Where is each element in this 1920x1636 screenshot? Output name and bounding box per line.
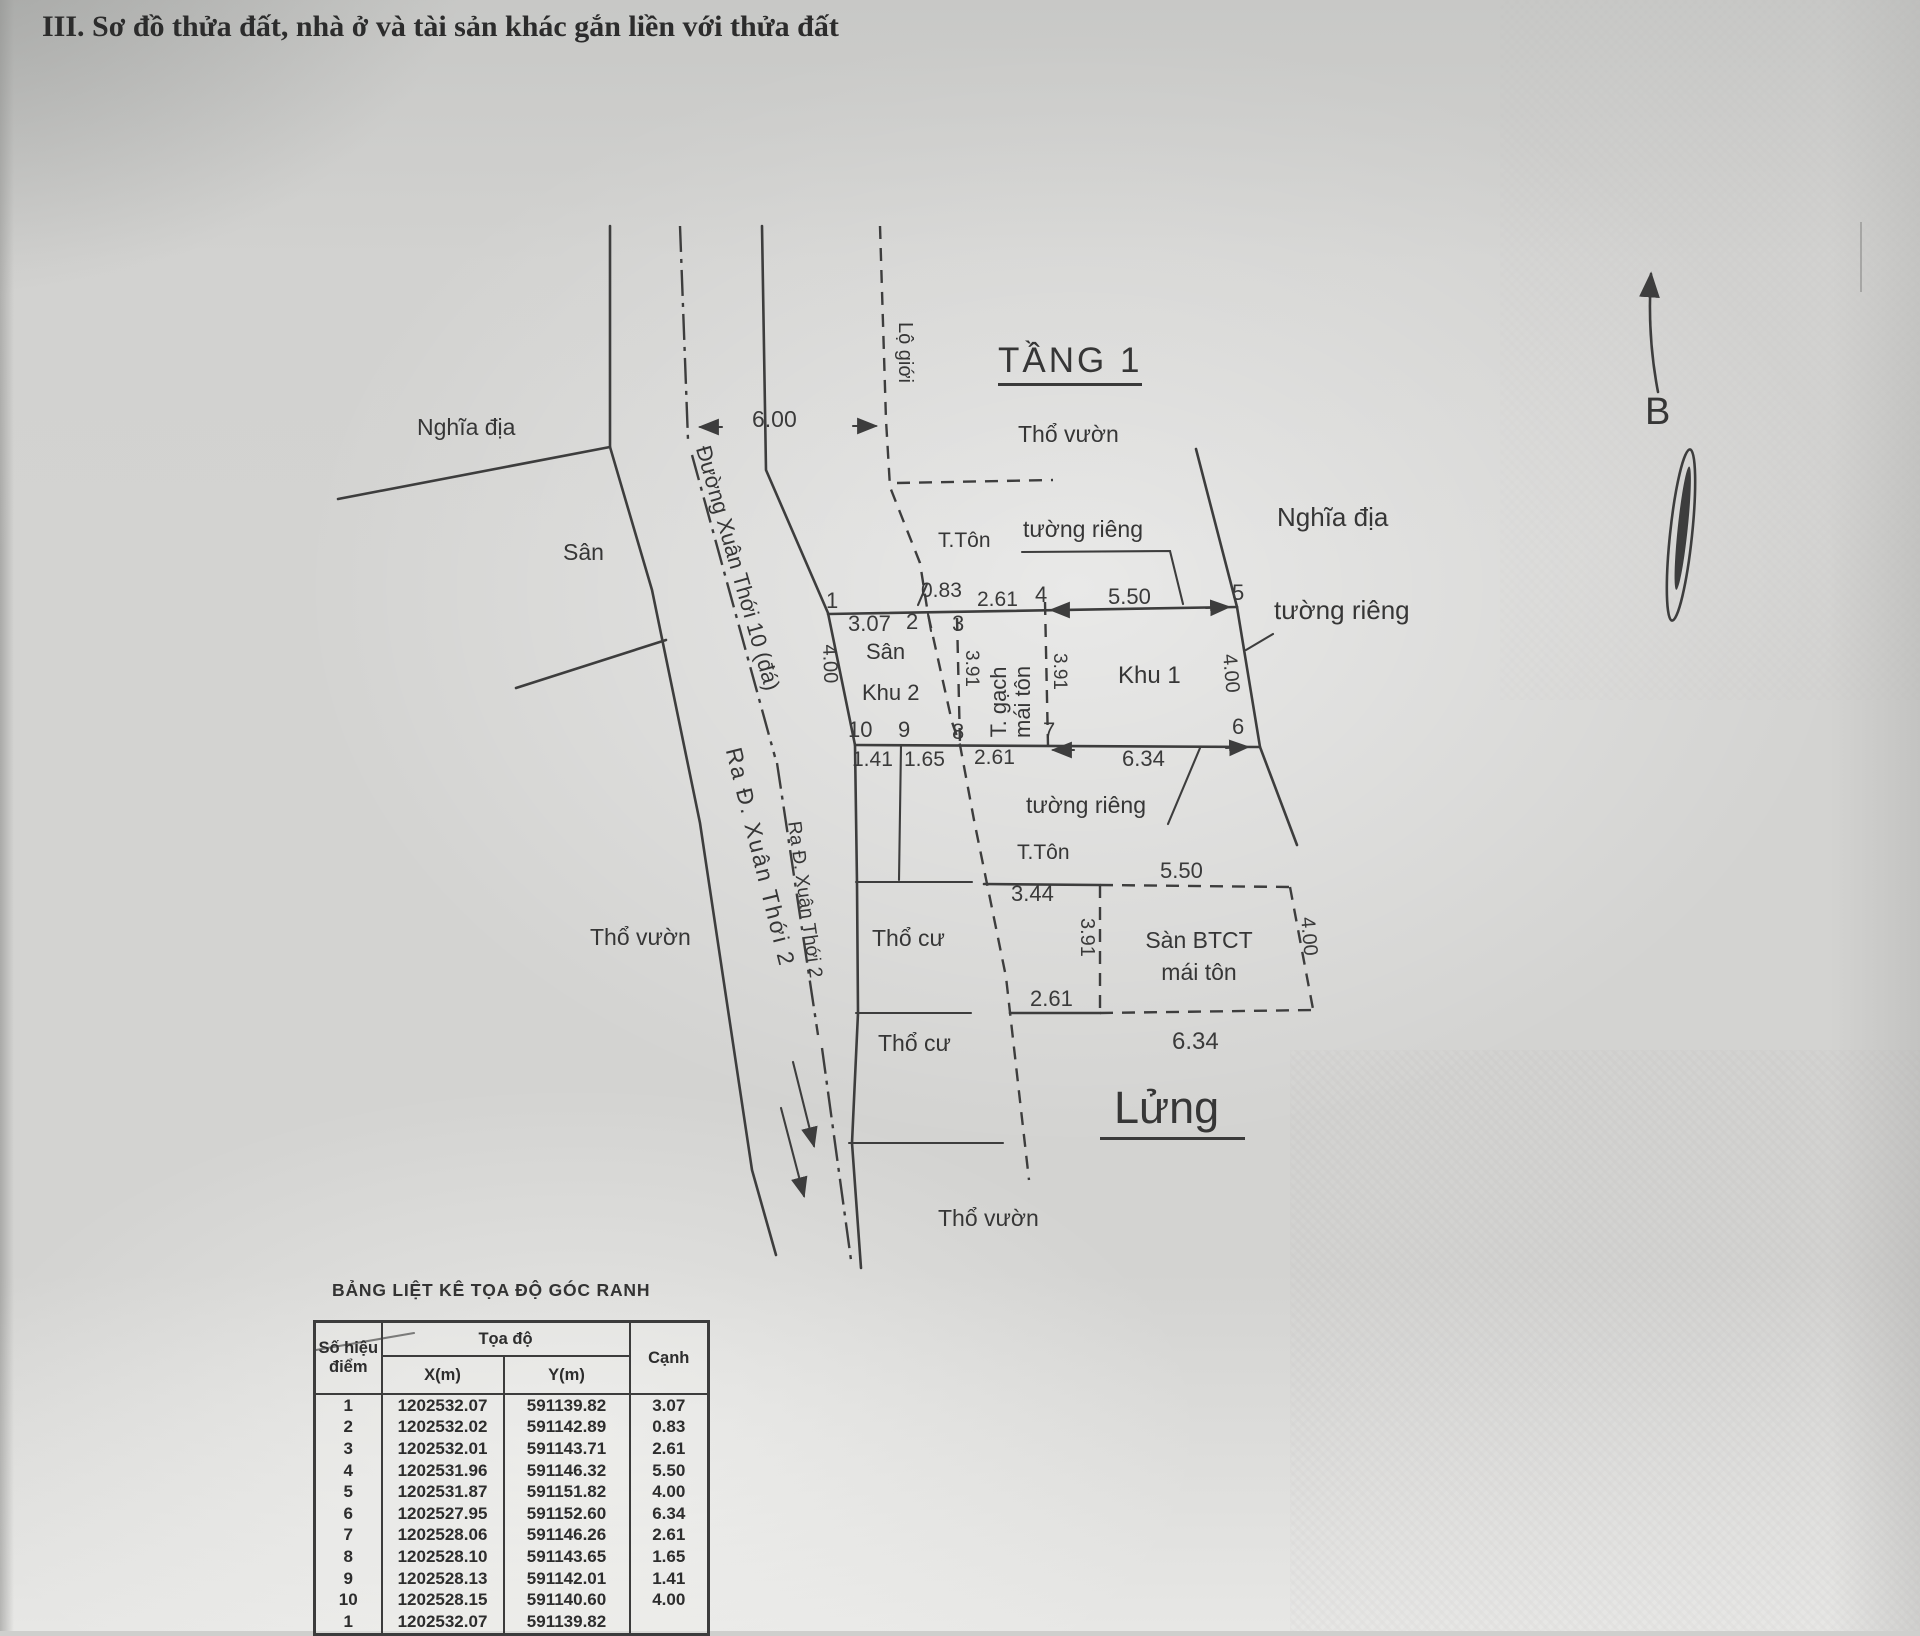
dim-2-61-top: 2.61 (977, 588, 1018, 612)
table-cell-y: 591146.26 (504, 1525, 630, 1547)
table-cell-p: 10 (315, 1589, 382, 1611)
table-cell-c: 6.34 (630, 1503, 709, 1525)
table-cell-c: 5.50 (630, 1460, 709, 1482)
table-row: 31202532.01591143.712.61 (315, 1438, 709, 1460)
point-marker-9: 9 (898, 717, 910, 743)
dim-1-41: 1.41 (852, 748, 893, 772)
col-header-point-line2: điểm (329, 1358, 368, 1376)
label-t-ton-top: T.Tôn (938, 529, 991, 552)
table-cell-c: 1.65 (630, 1546, 709, 1568)
label-tho-vuon-bottom: Thổ vườn (938, 1206, 1039, 1231)
table-cell-y: 591152.60 (504, 1503, 630, 1525)
dim-5-50-top: 5.50 (1108, 584, 1151, 610)
coordinate-table: Số hiệu điểm Tọa độ Cạnh X(m) Y(m) 11202… (313, 1320, 710, 1636)
table-cell-p: 7 (315, 1525, 382, 1547)
dimension-arrows (700, 426, 1248, 750)
label-san-left: Sân (563, 540, 604, 565)
table-cell-p: 4 (315, 1460, 382, 1482)
dim-0-83: 0.83 (921, 579, 962, 603)
dim-6-00: 6.00 (752, 406, 797, 433)
label-tuong-rieng-mid: tường riêng (1026, 793, 1146, 818)
t-gach-line1: T. gạch (986, 666, 1011, 737)
table-cell-c: 4.00 (630, 1481, 709, 1503)
label-khu1: Khu 1 (1118, 663, 1181, 689)
table-cell-y: 591143.71 (504, 1438, 630, 1460)
site-plan-lines (0, 0, 1920, 1631)
label-t-gach-mai-ton: T. gạch mái tôn (987, 666, 1035, 738)
dim-4-00-bottom: 4.00 (1295, 916, 1321, 957)
table-row: 71202528.06591146.262.61 (315, 1525, 709, 1547)
table-cell-c: 0.83 (630, 1417, 709, 1439)
label-tho-cu-2: Thổ cư (878, 1031, 951, 1056)
table-cell-y: 591140.60 (504, 1589, 630, 1611)
dim-4-00-left: 4.00 (817, 644, 841, 684)
dim-3-91-b: 3.91 (1048, 653, 1070, 690)
table-cell-y: 591142.01 (504, 1568, 630, 1590)
point-marker-2: 2 (906, 609, 918, 635)
table-cell-c: 2.61 (630, 1525, 709, 1547)
setback-label: Lộ giới (894, 322, 916, 383)
table-row: 21202532.02591142.890.83 (315, 1417, 709, 1439)
dim-3-91-c: 3.91 (1075, 918, 1098, 957)
table-cell-y: 591151.82 (504, 1481, 630, 1503)
label-tho-cu-1: Thổ cư (872, 926, 945, 951)
coordinate-table-title: BẢNG LIỆT KÊ TỌA ĐỘ GÓC RANH (332, 1280, 650, 1301)
table-cell-x: 1202532.07 (382, 1394, 504, 1417)
table-cell-x: 1202528.06 (382, 1525, 504, 1547)
point-marker-4: 4 (1035, 582, 1047, 608)
point-marker-10: 10 (848, 717, 872, 743)
north-arrow-icon (1650, 274, 1701, 622)
north-label: B (1645, 392, 1670, 434)
table-body: 11202532.07591139.823.0721202532.0259114… (315, 1394, 709, 1634)
point-marker-1: 1 (826, 588, 838, 614)
table-cell-y: 591142.89 (504, 1417, 630, 1439)
table-cell-y: 591143.65 (504, 1546, 630, 1568)
san-btct-line1: Sàn BTCT (1145, 927, 1252, 953)
mezzanine-heading: Lửng (1100, 1083, 1245, 1140)
table-cell-x: 1202528.13 (382, 1568, 504, 1590)
col-header-y: Y(m) (504, 1356, 630, 1394)
table-row: 81202528.10591143.651.65 (315, 1546, 709, 1568)
table-cell-p: 1 (315, 1394, 382, 1417)
point-marker-7: 7 (1043, 718, 1055, 744)
table-cell-c: 4.00 (630, 1589, 709, 1611)
label-san-btct: Sàn BTCT mái tôn (1140, 924, 1258, 988)
road-lines (338, 226, 851, 1260)
table-cell-x: 1202532.02 (382, 1417, 504, 1439)
col-header-point-line1: Số hiệu (318, 1339, 378, 1357)
label-t-ton-bottom: T.Tôn (1017, 841, 1070, 864)
table-cell-p: 9 (315, 1568, 382, 1590)
table-row: 51202531.87591151.824.00 (315, 1481, 709, 1503)
san-btct-line2: mái tôn (1161, 959, 1236, 985)
table-cell-p: 6 (315, 1503, 382, 1525)
dim-1-65: 1.65 (904, 748, 945, 772)
table-cell-p: 2 (315, 1417, 382, 1439)
label-nghia-dia-left: Nghĩa địa (417, 415, 515, 440)
dim-4-00-right: 4.00 (1217, 653, 1243, 694)
point-marker-5: 5 (1232, 580, 1244, 606)
dim-6-34-top: 6.34 (1122, 746, 1165, 772)
label-khu2: Khu 2 (862, 681, 920, 705)
label-nghia-dia-right: Nghĩa địa (1277, 503, 1388, 532)
table-row: 61202527.95591152.606.34 (315, 1503, 709, 1525)
table-row: 91202528.13591142.011.41 (315, 1568, 709, 1590)
dim-3-44: 3.44 (1011, 881, 1054, 907)
dim-2-61-mid: 2.61 (974, 746, 1015, 770)
table-cell-x: 1202532.01 (382, 1438, 504, 1460)
point-marker-6: 6 (1232, 714, 1244, 740)
dim-3-91-a: 3.91 (960, 650, 982, 687)
table-cell-p: 8 (315, 1546, 382, 1568)
table-cell-x: 1202531.87 (382, 1481, 504, 1503)
dim-2-61-bottom: 2.61 (1030, 986, 1073, 1012)
col-header-point: Số hiệu điểm (315, 1322, 382, 1395)
label-tuong-rieng-top: tường riêng (1023, 517, 1143, 542)
table-cell-y: 591139.82 (504, 1394, 630, 1417)
point-marker-8: 8 (952, 719, 964, 745)
table-cell-x: 1202531.96 (382, 1460, 504, 1482)
table-cell-x: 1202528.10 (382, 1546, 504, 1568)
table-row: 41202531.96591146.325.50 (315, 1460, 709, 1482)
table-cell-p: 3 (315, 1438, 382, 1460)
table-cell-x: 1202528.15 (382, 1589, 504, 1611)
table-row: 101202528.15591140.604.00 (315, 1589, 709, 1611)
table-cell-c: 1.41 (630, 1568, 709, 1590)
table-cell-y: 591146.32 (504, 1460, 630, 1482)
label-tho-vuon-left: Thổ vườn (590, 925, 691, 950)
table-row: 11202532.07591139.823.07 (315, 1394, 709, 1417)
dim-5-50-bottom: 5.50 (1160, 858, 1203, 884)
label-tuong-rieng-right: tường riêng (1274, 596, 1410, 625)
label-tho-vuon-top: Thổ vườn (1018, 422, 1119, 447)
dim-6-34-bottom: 6.34 (1172, 1028, 1219, 1056)
col-header-x: X(m) (382, 1356, 504, 1394)
table-cell-p: 5 (315, 1481, 382, 1503)
col-header-coords: Tọa độ (382, 1322, 630, 1357)
table-cell-c: 3.07 (630, 1394, 709, 1417)
dim-3-07: 3.07 (848, 611, 891, 637)
table-cell-x: 1202527.95 (382, 1503, 504, 1525)
label-san-inner: Sân (866, 640, 905, 664)
col-header-edge: Cạnh (630, 1322, 709, 1395)
point-marker-3: 3 (952, 611, 964, 637)
floor1-heading: TẦNG 1 (998, 342, 1142, 386)
table-cell-c: 2.61 (630, 1438, 709, 1460)
t-gach-line2: mái tôn (1010, 666, 1035, 738)
road-direction-arrows (781, 1062, 814, 1196)
